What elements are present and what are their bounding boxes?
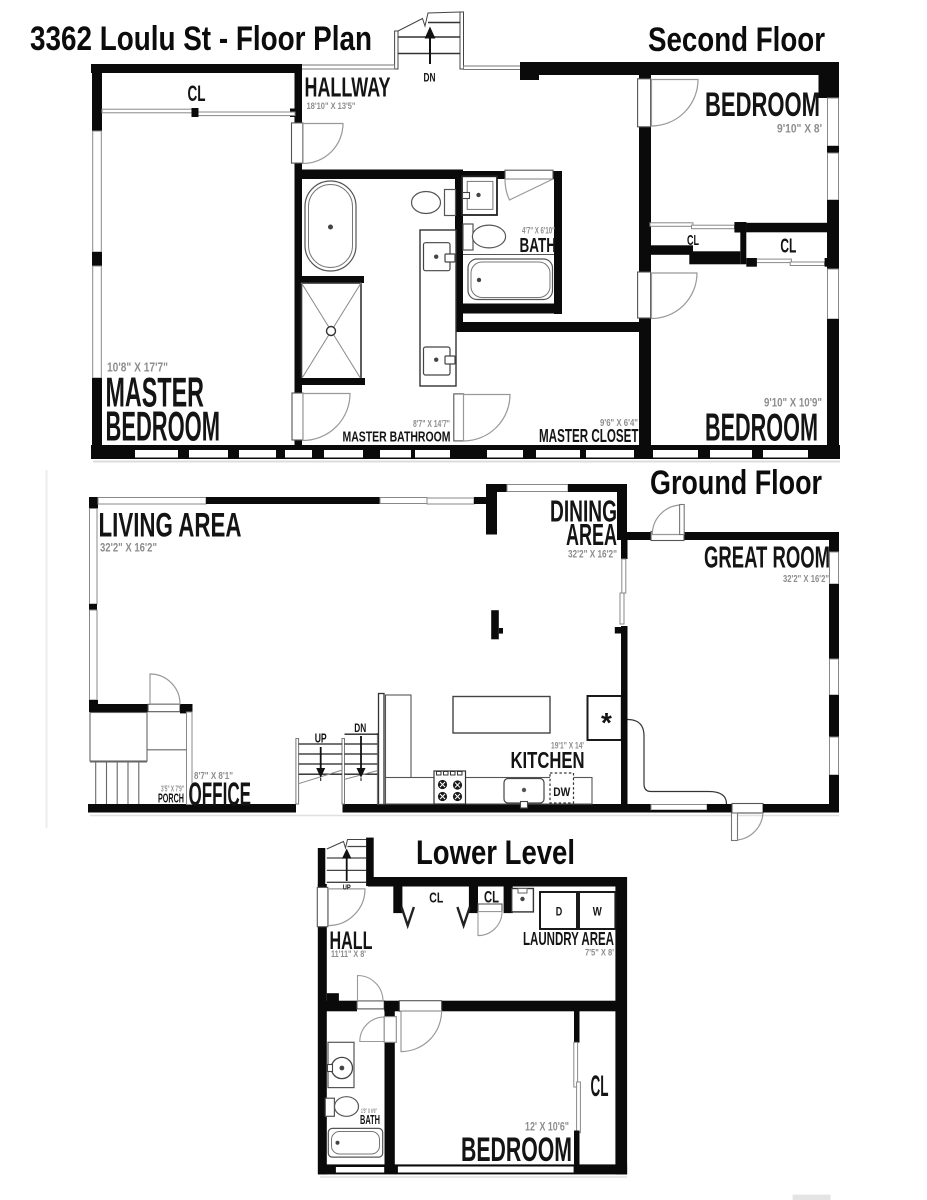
svg-text:AREA: AREA: [566, 517, 617, 552]
svg-text:BEDROOM: BEDROOM: [461, 1131, 572, 1169]
svg-text:*: *: [601, 707, 612, 738]
svg-text:CL: CL: [687, 232, 699, 249]
svg-text:BATH: BATH: [520, 235, 557, 257]
svg-text:LAUNDRY AREA: LAUNDRY AREA: [523, 928, 614, 949]
svg-text:W: W: [593, 907, 602, 919]
svg-text:D: D: [556, 907, 563, 919]
svg-text:UP: UP: [343, 885, 351, 892]
svg-text:GREAT ROOM: GREAT ROOM: [704, 541, 830, 575]
svg-text:UP: UP: [315, 731, 327, 746]
svg-text:3362 Loulu St - Floor Plan: 3362 Loulu St - Floor Plan: [30, 20, 372, 58]
svg-text:LIVING AREA: LIVING AREA: [99, 507, 242, 545]
svg-text:DN: DN: [424, 71, 436, 85]
svg-text:32'2" X 16'2": 32'2" X 16'2": [568, 549, 617, 561]
svg-text:PORCH: PORCH: [158, 791, 184, 806]
svg-text:11'11" X 8': 11'11" X 8': [331, 949, 366, 959]
svg-text:OFFICE: OFFICE: [189, 776, 252, 813]
svg-text:Ground Floor: Ground Floor: [650, 464, 822, 502]
svg-text:BEDROOM: BEDROOM: [705, 86, 820, 124]
svg-text:BEDROOM: BEDROOM: [106, 403, 221, 450]
svg-text:CL: CL: [780, 236, 796, 258]
svg-text:4'7" X 6'10": 4'7" X 6'10": [522, 226, 555, 237]
svg-text:DW: DW: [553, 785, 571, 799]
svg-text:Second Floor: Second Floor: [648, 21, 825, 59]
svg-text:9'10" X 8': 9'10" X 8': [777, 122, 822, 136]
svg-text:Lower Level: Lower Level: [416, 834, 575, 872]
svg-text:CL: CL: [188, 81, 206, 106]
svg-text:32'2" X 16'2": 32'2" X 16'2": [100, 543, 157, 555]
svg-text:CL: CL: [591, 1070, 609, 1103]
svg-text:7'5" X 8': 7'5" X 8': [585, 948, 614, 959]
svg-text:MASTER BATHROOM: MASTER BATHROOM: [343, 430, 451, 446]
svg-text:18'10" X 13'5": 18'10" X 13'5": [307, 101, 356, 112]
svg-text:KITCHEN: KITCHEN: [511, 747, 585, 773]
svg-text:DN: DN: [354, 721, 366, 735]
svg-text:8'7" X 14'7": 8'7" X 14'7": [413, 418, 450, 430]
svg-text:MASTER CLOSET: MASTER CLOSET: [539, 426, 639, 446]
svg-text:HALLWAY: HALLWAY: [305, 71, 391, 102]
svg-text:CL: CL: [429, 890, 443, 907]
svg-text:BEDROOM: BEDROOM: [705, 407, 818, 450]
svg-text:32'2" X 16'2": 32'2" X 16'2": [783, 573, 829, 585]
svg-text:BATH: BATH: [360, 1112, 380, 1127]
